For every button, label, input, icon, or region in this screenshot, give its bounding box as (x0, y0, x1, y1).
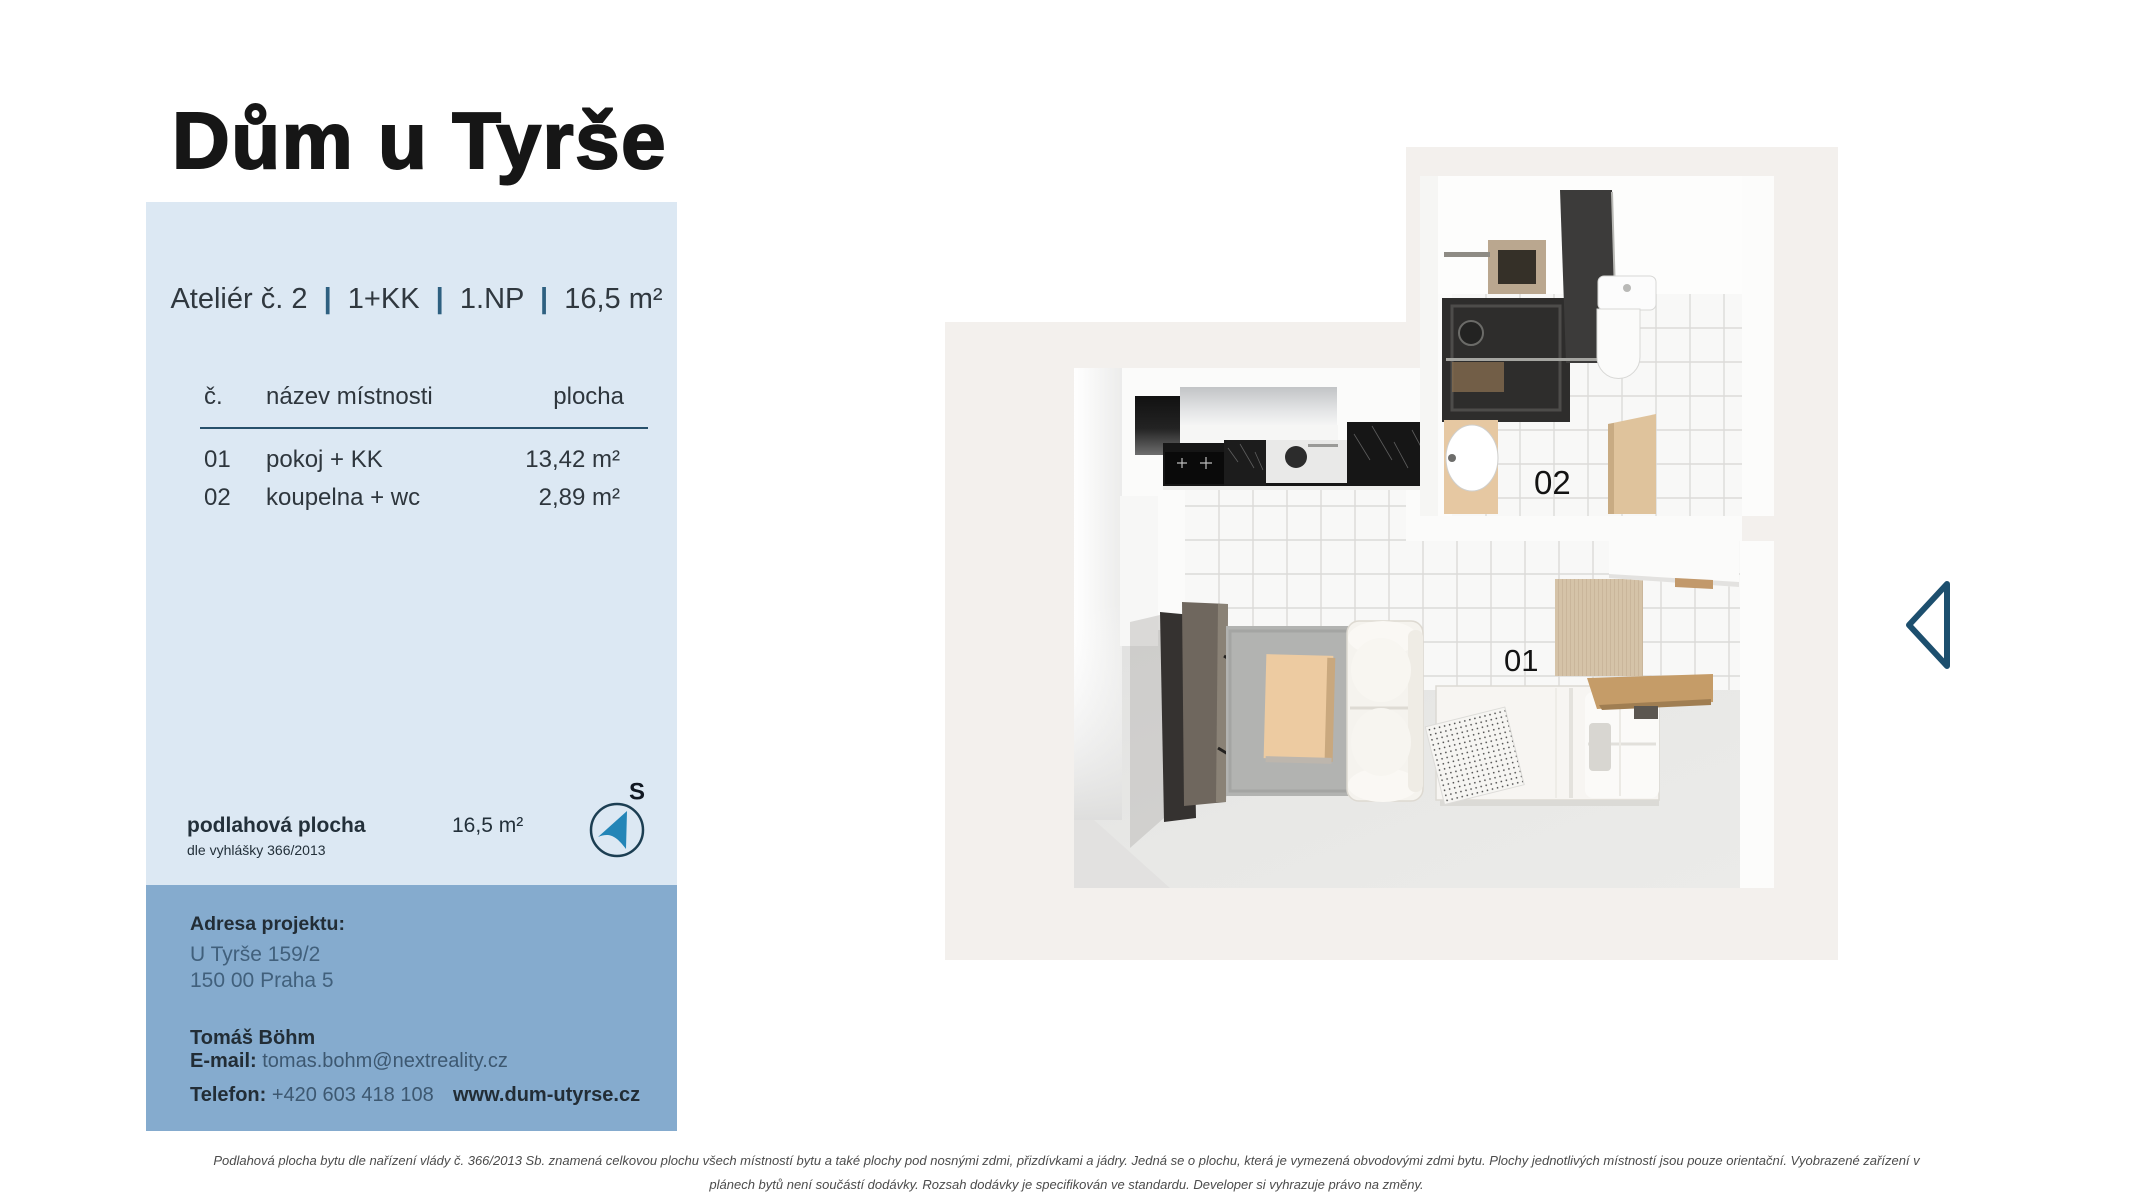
svg-text:01: 01 (1504, 643, 1538, 678)
svg-text:S: S (629, 779, 645, 806)
svg-text:02: 02 (1534, 464, 1571, 501)
